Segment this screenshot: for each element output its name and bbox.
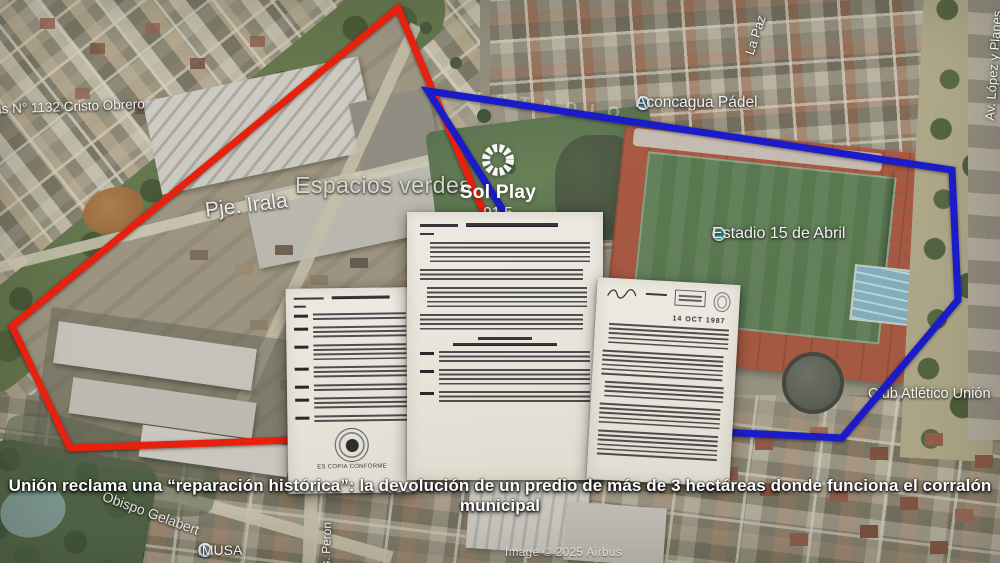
doc-text-lines	[427, 287, 587, 310]
box-stamp-icon	[675, 290, 707, 308]
article-marker	[294, 346, 308, 349]
doc-text-lines	[439, 391, 590, 405]
doc-header	[420, 223, 590, 227]
doc-seal-block: ES COPIA CONFORME	[312, 428, 393, 471]
doc-article	[294, 313, 406, 324]
doc-text-lines	[604, 381, 724, 406]
doc-title-line	[466, 223, 558, 227]
doc-text-lines	[313, 344, 406, 363]
doc-mark	[294, 306, 306, 308]
headline-caption: Unión reclama una “reparación histórica”…	[0, 476, 1000, 516]
doc-article	[294, 326, 406, 342]
doc-center-line	[478, 337, 532, 340]
doc-header-line	[294, 297, 324, 300]
doc-article	[295, 366, 407, 382]
doc-article	[295, 397, 407, 413]
doc-text-lines	[314, 384, 407, 394]
round-stamp-icon	[713, 292, 731, 313]
doc-title-line	[332, 295, 390, 299]
doc-text-lines	[313, 326, 406, 341]
doc-text-lines	[314, 415, 407, 425]
article-marker	[420, 370, 434, 373]
doc-article	[420, 351, 590, 365]
news-graphic: ESTADIO Pje. Irala as N° 1132 Cristo Obr…	[0, 0, 1000, 563]
letterhead-script-icon	[606, 286, 639, 302]
ordinance-document-center	[407, 212, 603, 480]
doc-text-lines	[598, 402, 720, 432]
article-marker	[294, 328, 308, 331]
doc-text-lines	[314, 397, 407, 412]
doc-header	[294, 295, 406, 300]
doc-text-lines	[313, 313, 406, 323]
doc-header-line	[420, 224, 458, 227]
article-marker	[420, 352, 434, 355]
doc-text-lines	[439, 351, 590, 365]
doc-text-lines	[439, 369, 590, 387]
doc-article	[420, 391, 590, 405]
solplay-name: Sol Play	[452, 182, 544, 204]
doc-centered-heading	[420, 337, 590, 346]
doc-article	[294, 344, 406, 364]
doc-text-lines	[314, 366, 407, 381]
solplay-logo: Sol Play 91.5	[452, 140, 544, 221]
article-marker	[295, 417, 309, 420]
doc-text-lines	[420, 314, 583, 332]
doc-mark	[420, 233, 434, 235]
letter-document-right: 14 OCT 1987	[586, 277, 740, 487]
article-marker	[295, 368, 309, 371]
doc-center-title	[453, 343, 557, 347]
doc-text-lines	[601, 350, 724, 384]
doc-text-lines	[597, 429, 718, 463]
doc-header-line	[646, 293, 667, 297]
seal-caption: ES COPIA CONFORME	[317, 464, 387, 471]
doc-text-lines	[420, 269, 583, 283]
ordinance-document-left: ES COPIA CONFORME	[286, 287, 417, 494]
doc-letterhead-row	[605, 286, 731, 313]
article-marker	[294, 315, 308, 318]
doc-text-lines	[608, 323, 729, 353]
doc-text-lines	[430, 242, 590, 265]
doc-article	[295, 384, 407, 395]
article-marker	[295, 386, 309, 389]
solplay-sun-icon	[478, 140, 518, 180]
article-marker	[295, 399, 309, 402]
doc-article	[295, 415, 407, 426]
doc-article	[420, 369, 590, 387]
article-marker	[420, 392, 434, 395]
notary-seal-icon	[335, 428, 369, 462]
